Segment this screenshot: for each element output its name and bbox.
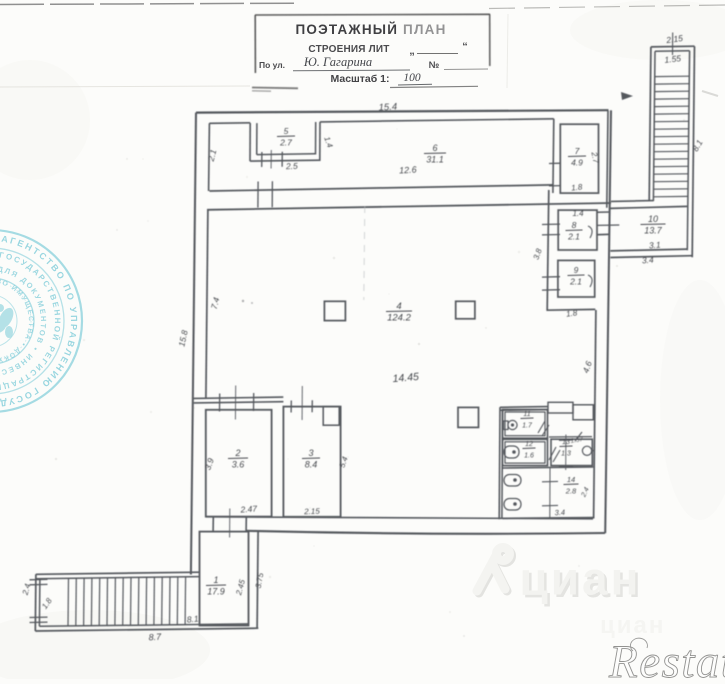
svg-text:циан: циан bbox=[600, 612, 665, 639]
svg-text:31.1: 31.1 bbox=[426, 155, 444, 165]
svg-text:3.1: 3.1 bbox=[649, 240, 662, 251]
svg-text:3.6: 3.6 bbox=[232, 460, 245, 470]
svg-text:2.8: 2.8 bbox=[565, 487, 577, 496]
svg-text:ПОЭТАЖНЫЙ ПЛАН: ПОЭТАЖНЫЙ ПЛАН bbox=[295, 22, 446, 37]
svg-text:3.4: 3.4 bbox=[642, 255, 655, 266]
svg-text:8.7: 8.7 bbox=[148, 632, 162, 643]
svg-text:Restate: Restate bbox=[608, 636, 725, 679]
svg-text:1.6: 1.6 bbox=[524, 453, 534, 460]
svg-text:4.9: 4.9 bbox=[571, 158, 583, 168]
svg-text:8.4: 8.4 bbox=[305, 460, 318, 470]
svg-text:2.1: 2.1 bbox=[569, 277, 582, 287]
svg-text:1.7: 1.7 bbox=[522, 423, 533, 430]
svg-text:12: 12 bbox=[525, 441, 533, 448]
svg-text:2.47: 2.47 bbox=[239, 503, 257, 514]
svg-text:100: 100 bbox=[403, 72, 421, 84]
svg-text:15.4: 15.4 bbox=[378, 102, 397, 114]
svg-text:13.7: 13.7 bbox=[644, 226, 663, 236]
svg-text:2: 2 bbox=[234, 448, 240, 458]
svg-text:2.15: 2.15 bbox=[303, 507, 320, 517]
svg-text:“: “ bbox=[462, 41, 468, 53]
svg-text:9: 9 bbox=[574, 265, 579, 275]
svg-text:12.6: 12.6 bbox=[399, 165, 417, 176]
svg-text:7: 7 bbox=[575, 146, 580, 156]
svg-text:циан: циан bbox=[520, 553, 642, 605]
svg-text:14.45: 14.45 bbox=[392, 371, 419, 385]
svg-text:Масштаб 1:: Масштаб 1: bbox=[330, 73, 389, 85]
svg-text:3: 3 bbox=[308, 448, 313, 458]
svg-text:1.8: 1.8 bbox=[571, 182, 584, 192]
svg-text:1.3: 1.3 bbox=[561, 451, 571, 458]
svg-text:1.8: 1.8 bbox=[566, 308, 579, 319]
svg-text:14: 14 bbox=[567, 475, 575, 484]
svg-text:2.5: 2.5 bbox=[285, 161, 299, 172]
svg-text:1.55: 1.55 bbox=[664, 53, 682, 65]
svg-text:СТРОЕНИЯ ЛИТ: СТРОЕНИЯ ЛИТ bbox=[308, 44, 389, 55]
svg-text:5: 5 bbox=[284, 126, 289, 136]
svg-text:10: 10 bbox=[648, 214, 658, 224]
svg-text:2.1: 2.1 bbox=[567, 232, 580, 242]
svg-text:4: 4 bbox=[396, 301, 401, 312]
svg-text:3.4: 3.4 bbox=[554, 508, 565, 518]
svg-text:1: 1 bbox=[213, 575, 218, 585]
svg-text:6: 6 bbox=[432, 143, 437, 153]
svg-text:№: № bbox=[429, 60, 440, 71]
svg-text:13: 13 bbox=[562, 439, 570, 446]
svg-text:8.1: 8.1 bbox=[186, 613, 199, 624]
svg-text:1.4: 1.4 bbox=[572, 209, 584, 218]
svg-text:8: 8 bbox=[572, 220, 577, 230]
svg-text:По ул.: По ул. bbox=[259, 60, 285, 70]
svg-text:„: „ bbox=[409, 45, 415, 57]
svg-text:17.9: 17.9 bbox=[207, 587, 225, 597]
svg-text:124.2: 124.2 bbox=[387, 313, 411, 324]
svg-text:Ю. Гагарина: Ю. Гагарина bbox=[303, 55, 372, 69]
svg-text:2.7: 2.7 bbox=[279, 138, 292, 148]
svg-text:11: 11 bbox=[523, 411, 530, 418]
